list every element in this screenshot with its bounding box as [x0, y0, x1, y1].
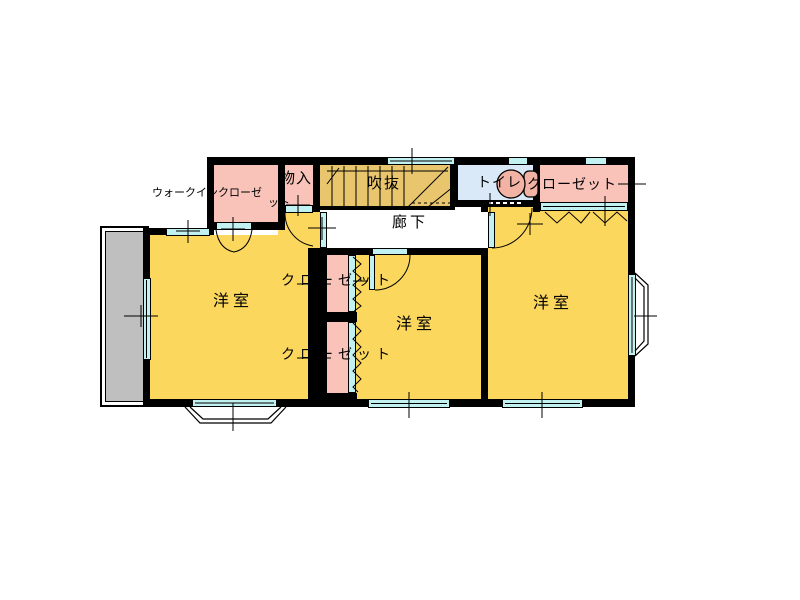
walk-in-door-arc-right	[234, 230, 252, 252]
room-right-label: 洋室	[533, 295, 573, 312]
room-left-label: 洋室	[213, 293, 253, 310]
floor-plan: ウォークインクローゼ ット 物入 吹抜 トイレ クローゼット 廊下 クローゼット…	[0, 0, 800, 600]
right-room-door-arc	[492, 208, 532, 248]
hallway-label: 廊下	[392, 215, 428, 231]
left-bay-projection	[185, 407, 286, 423]
closet-middle-lower-label: クローゼット	[281, 348, 395, 363]
atrium-label: 吹抜	[367, 176, 401, 192]
plan-linework	[0, 0, 800, 600]
toilet-label: トイレ	[477, 176, 522, 191]
room-middle-label: 洋室	[396, 316, 436, 333]
folding-door-top-right	[545, 212, 627, 223]
right-bay-projection	[635, 273, 648, 356]
walk-in-door-arc-left	[216, 230, 234, 252]
storage-door-arc	[285, 213, 313, 246]
closet-middle-upper-label: クローゼット	[281, 274, 395, 289]
closet-top-right-label: クローゼット	[527, 178, 617, 193]
storage-label: 物入	[280, 171, 312, 187]
walk-in-closet-label-line1: ウォークインクローゼ	[152, 187, 262, 199]
walk-in-closet-label-line2: ット	[268, 197, 290, 209]
